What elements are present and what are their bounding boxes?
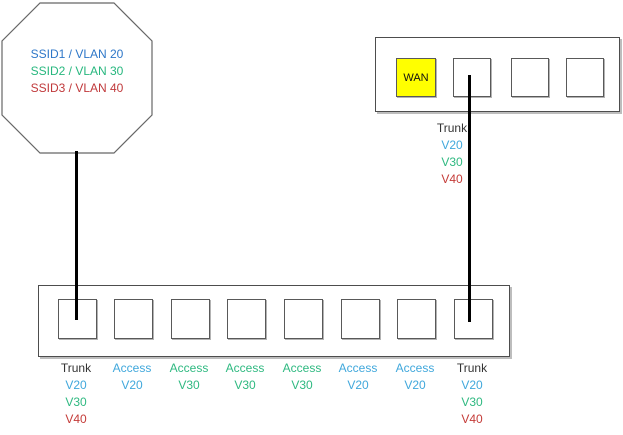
switch-port-7 [397,299,436,339]
router-uplink-label: Trunk V20 V30 V40 [422,120,482,188]
vlan-label: V30 [422,154,482,171]
network-diagram: SSID1 / VLAN 20 SSID2 / VLAN 30 SSID3 / … [0,0,623,435]
vlan-label: V20 [46,377,106,394]
ap-to-switch-cable [75,151,78,320]
port-mode-label: Access [385,360,445,377]
switch-port-6 [341,299,380,339]
ssid3-label: SSID3 / VLAN 40 [2,80,152,97]
router-box: WAN [375,37,620,112]
switch-port-5 [284,299,323,339]
vlan-label: V30 [272,377,332,394]
switch-port-4-label: Access V30 [215,360,275,394]
vlan-label: V20 [328,377,388,394]
switch-port-5-label: Access V30 [272,360,332,394]
switch-port-3 [171,299,210,339]
vlan-label: V30 [46,394,106,411]
port-mode-label: Access [215,360,275,377]
vlan-label: V20 [102,377,162,394]
switch-box [38,285,510,357]
vlan-label: V40 [46,411,106,428]
port-mode-label: Trunk [442,360,502,377]
switch-port-1-label: Trunk V20 V30 V40 [46,360,106,428]
switch-port-7-label: Access V20 [385,360,445,394]
vlan-label: V20 [442,377,502,394]
vlan-label: V40 [422,171,482,188]
vlan-label: V30 [159,377,219,394]
switch-port-4 [227,299,266,339]
router-to-switch-cable [468,75,471,322]
switch-port-3-label: Access V30 [159,360,219,394]
vlan-label: V20 [422,137,482,154]
ssid2-label: SSID2 / VLAN 30 [2,63,152,80]
port-mode-label: Access [272,360,332,377]
port-mode-label: Trunk [46,360,106,377]
switch-port-8-label: Trunk V20 V30 V40 [442,360,502,428]
vlan-label: V30 [442,394,502,411]
vlan-label: V20 [385,377,445,394]
switch-port-8 [454,299,493,339]
port-mode-label: Access [328,360,388,377]
router-port-4 [566,58,604,97]
switch-port-2 [114,299,153,339]
vlan-label: V40 [442,411,502,428]
router-wan-port: WAN [396,58,436,97]
router-port-3 [511,58,549,97]
access-point-ssid-list: SSID1 / VLAN 20 SSID2 / VLAN 30 SSID3 / … [2,46,152,97]
switch-port-6-label: Access V20 [328,360,388,394]
port-mode-label: Access [102,360,162,377]
wan-port-label: WAN [403,72,428,84]
port-mode-label: Access [159,360,219,377]
vlan-label: V30 [215,377,275,394]
router-port-2 [453,58,491,97]
ssid1-label: SSID1 / VLAN 20 [2,46,152,63]
switch-port-2-label: Access V20 [102,360,162,394]
port-mode-label: Trunk [422,120,482,137]
